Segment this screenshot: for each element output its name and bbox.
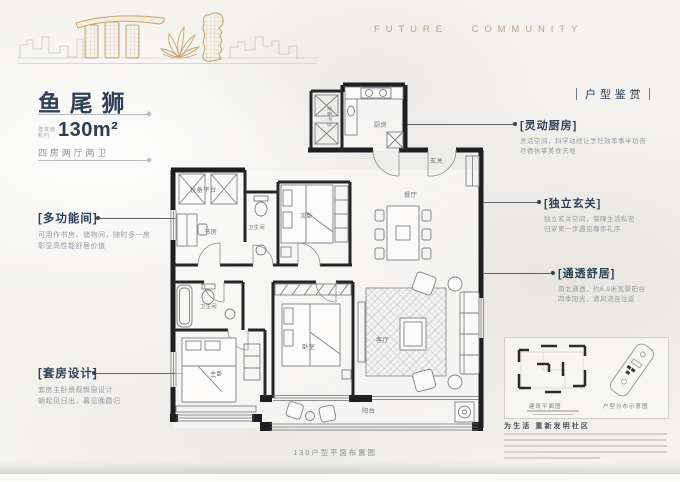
brand-text: FUTURE COMMUNITY	[374, 24, 654, 35]
divider-bottom	[38, 160, 150, 161]
unit-distribution-diagram	[600, 340, 664, 400]
skyline-right	[230, 37, 304, 58]
title-bar-left	[576, 88, 577, 100]
area-row: 建筑面积约 130m²	[38, 119, 118, 142]
room-label-bedroom2: 次卧	[300, 212, 313, 220]
annotation-line: 彰显高性能舒居价值	[38, 241, 188, 252]
annotation-kitchen: [灵动厨房] 灵活空间，科学动线让烹饪效率事半功倍 尽情执掌美食天地	[520, 117, 668, 157]
divider-top	[38, 114, 150, 115]
title-bar-right	[649, 88, 650, 100]
room-label-dining: 餐厅	[404, 191, 417, 199]
annotation-title: [独立玄关]	[544, 195, 674, 211]
singapore-skyline-art	[18, 5, 318, 63]
annotation-line: 四季阳光，清风流连往返	[558, 295, 678, 305]
merlion-icon	[203, 13, 223, 61]
room-label-equipment1: 设备平台	[190, 186, 217, 194]
dist-caption: 户型分布示意图	[603, 402, 649, 410]
room-label-balcony: 阳台	[362, 407, 375, 415]
brochure-page: FUTURE COMMUNITY 鱼尾狮 建筑面积约 130m² 四房两厅两卫 …	[0, 0, 680, 482]
disclaimer-line	[504, 433, 667, 435]
annotation-line: 尽情执掌美食天地	[520, 147, 668, 157]
unit-layout: 四房两厅两卫	[38, 146, 109, 159]
leader-dot	[513, 122, 517, 126]
annotation-line: 独立玄关空间，保障生活私密	[544, 215, 674, 225]
mini-plan-diagram	[513, 342, 591, 398]
annotation-line: 套房主卧景观飘窗设计	[38, 385, 188, 396]
annotation-line: 灵活空间，科学动线让烹饪效率事半功倍	[520, 137, 668, 147]
room-label-equipment2: 设备平台	[326, 106, 333, 127]
mini-plan-note	[533, 414, 573, 416]
room-label-bedroom3: 卧室	[302, 343, 315, 351]
slogan: 为生活 重新发明社区	[504, 421, 590, 431]
header-divider	[18, 63, 316, 64]
leader-dot	[537, 200, 541, 204]
annotation-line: 归家第一步遇见尊崇礼序	[544, 225, 674, 235]
room-label-master: 主卧	[210, 370, 223, 378]
plan-caption: 130户型平面布置图	[240, 447, 430, 458]
marina-bay-sands-icon	[76, 16, 164, 58]
page-edge	[0, 473, 680, 482]
room-label-study: 书房	[204, 228, 217, 236]
annotation-line: 朝起见日出，暮见晚霞归	[38, 396, 188, 407]
room-label-kitchen: 厨房	[374, 121, 387, 129]
leader-dot	[551, 271, 555, 275]
disclaimer-line	[504, 457, 600, 459]
disclaimer-line	[504, 439, 667, 441]
annotation-multifunction: [多功能间] 可用作书房、储物间，随时多一房 彰显高性能舒居价值	[38, 210, 188, 252]
legend-box: 建筑平面图 户型分布示意图	[504, 337, 669, 419]
room-label-living: 客厅	[376, 336, 389, 344]
annotation-foyer: [独立玄关] 独立玄关空间，保障生活私密 归家第一步遇见尊崇礼序	[544, 195, 674, 235]
section-title: 户型鉴赏	[576, 86, 650, 102]
annotation-suite: [套房设计] 套房主卧景观飘窗设计 朝起见日出，暮见晚霞归	[38, 365, 188, 407]
room-label-bath1: 卫生间	[248, 223, 265, 231]
leader-line	[484, 273, 554, 274]
annotation-airy: [通透舒居] 南北通透，约6.9米宽景阳台 四季阳光，清风流连往返	[558, 265, 678, 305]
annotation-title: [通透舒居]	[558, 265, 678, 281]
room-label-bath2: 卫生间	[200, 302, 217, 310]
disclaimer-line	[504, 451, 667, 453]
annotation-line: 南北通透，约6.9米宽景阳台	[558, 285, 678, 295]
mini-plan-note	[527, 410, 579, 412]
annotation-line: 可用作书房、储物间，随时多一房	[38, 230, 188, 241]
unit-name: 鱼尾狮	[38, 84, 133, 118]
floor-plan: 设备平台 书房 卫生间 次卧 厨房 设备平台 玄关 餐厅 卫生间 主卧 卧室 客…	[168, 82, 493, 437]
area-value: 130m²	[58, 119, 118, 142]
annotation-title: [灵动厨房]	[520, 117, 668, 133]
leader-line	[100, 218, 178, 219]
lotus-museum-icon	[161, 27, 199, 58]
area-note: 建筑面积约	[38, 127, 56, 139]
room-label-foyer: 玄关	[430, 157, 443, 165]
section-title-text: 户型鉴赏	[585, 86, 644, 102]
disclaimer-line	[504, 445, 667, 447]
mini-plan-caption: 建筑平面图	[529, 402, 562, 410]
skyline-left	[20, 37, 83, 58]
